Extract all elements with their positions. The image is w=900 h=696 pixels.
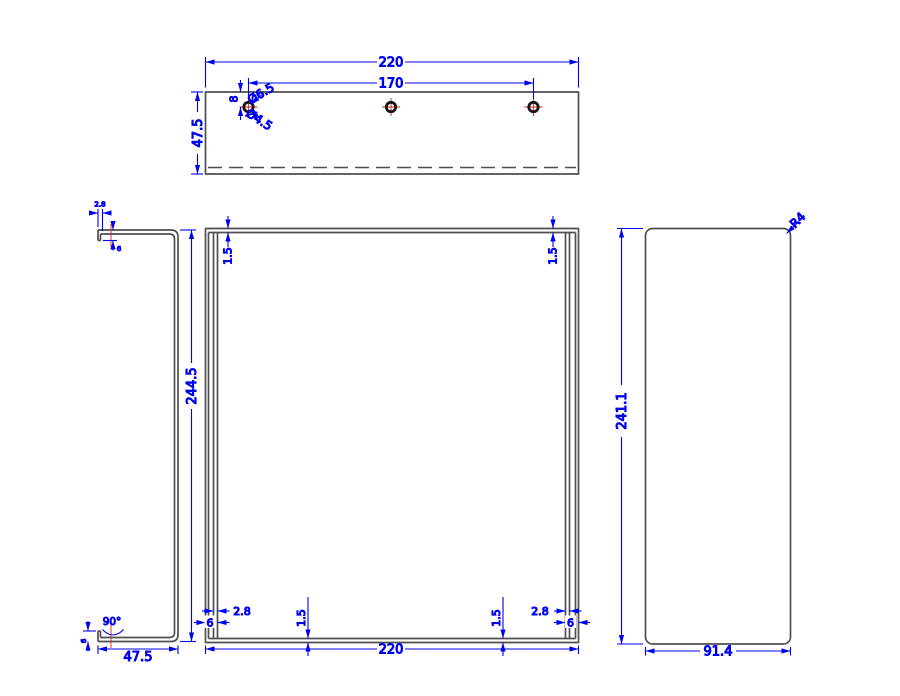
dim-lip-gap-right-label: 2.8	[531, 605, 549, 618]
mounting-hole-right	[525, 98, 543, 116]
front-view: 1.5 1.5 2.8 6 1.5 2.8	[194, 216, 590, 658]
dim-flat-height: 241.1	[615, 229, 643, 645]
dim-lip-offset: 2.8	[89, 201, 112, 232]
outer-profile	[98, 230, 178, 642]
dim-lip-length-top: 6	[103, 221, 122, 253]
dim-lip-width-right-label: 6	[567, 617, 574, 630]
dim-lip-width-left-label: 6	[207, 617, 214, 630]
dim-bend-angle: 90°	[103, 616, 124, 635]
dim-flat-height-label: 241.1	[615, 392, 630, 429]
dim-hole-spacing: 170	[249, 77, 534, 100]
side-view-outline	[98, 230, 178, 642]
side-view: 2.8 6 6 90° 244.5	[80, 201, 200, 666]
dim-wall-top-right: 1.5	[547, 216, 560, 265]
dim-front-width-label: 220	[379, 643, 404, 658]
dim-top-depth-label: 47.5	[191, 119, 206, 148]
dim-side-height-label: 244.5	[185, 367, 200, 404]
dim-side-depth-label: 47.5	[124, 650, 153, 665]
dim-flat-width: 91.4	[646, 645, 791, 660]
dim-side-height: 244.5	[180, 230, 200, 642]
dim-hole-edge-offset: 8	[228, 80, 241, 120]
top-view-body	[206, 92, 579, 174]
dim-wall-top-right-label: 1.5	[547, 247, 560, 265]
dim-wall-bottom-right-label: 1.5	[490, 609, 503, 627]
top-view: 220 170 47.5 8 Ø6.5 Ø4.5	[191, 56, 579, 175]
flat-view-body	[646, 229, 791, 645]
dim-wall-top-left-label: 1.5	[222, 247, 235, 265]
dim-front-width: 220	[206, 643, 579, 658]
dim-lip-offset-label: 2.8	[94, 201, 105, 209]
dim-flat-width-label: 91.4	[704, 645, 733, 660]
dim-lip-gap-left-label: 2.8	[233, 605, 251, 618]
dim-bend-angle-label: 90°	[103, 616, 122, 628]
cad-drawing-page: 220 170 47.5 8 Ø6.5 Ø4.5	[0, 0, 900, 696]
dim-hole-dia-outer-label: Ø6.5	[245, 80, 277, 107]
dim-wall-bottom-right: 1.5	[490, 597, 503, 656]
top-view-outline	[206, 92, 579, 174]
dim-hole-dia-inner: Ø4.5	[243, 106, 275, 133]
inner-profile	[101, 234, 175, 638]
dim-hole-dia-inner-label: Ø4.5	[243, 106, 275, 133]
dim-corner-radius-label: R4	[787, 210, 808, 231]
dim-top-depth: 47.5	[191, 92, 206, 174]
dim-corner-radius: R4	[787, 210, 809, 234]
dim-wall-bottom-left: 1.5	[295, 597, 308, 656]
dim-hole-edge-offset-label: 8	[228, 96, 241, 103]
dim-wall-bottom-left-label: 1.5	[295, 609, 308, 627]
dim-wall-top-left: 1.5	[222, 216, 235, 265]
dim-lip-length-top-label: 6	[117, 245, 122, 253]
dim-lip-length-bottom: 6	[80, 621, 96, 652]
dim-lip-width-right: 6	[554, 616, 590, 630]
dim-lip-length-bottom-label: 6	[80, 638, 88, 643]
dim-lip-width-left: 6	[194, 616, 230, 630]
dim-top-width-label: 220	[379, 56, 404, 71]
flat-view: R4 241.1 91.4	[615, 210, 808, 660]
front-view-body	[206, 229, 579, 643]
dim-side-depth: 47.5	[98, 646, 178, 666]
dim-hole-dia-outer: Ø6.5	[245, 80, 277, 107]
dim-hole-spacing-label: 170	[379, 77, 404, 92]
mounting-hole-center	[382, 98, 400, 116]
front-view-outline	[206, 229, 579, 643]
cad-canvas: 220 170 47.5 8 Ø6.5 Ø4.5	[0, 0, 900, 696]
